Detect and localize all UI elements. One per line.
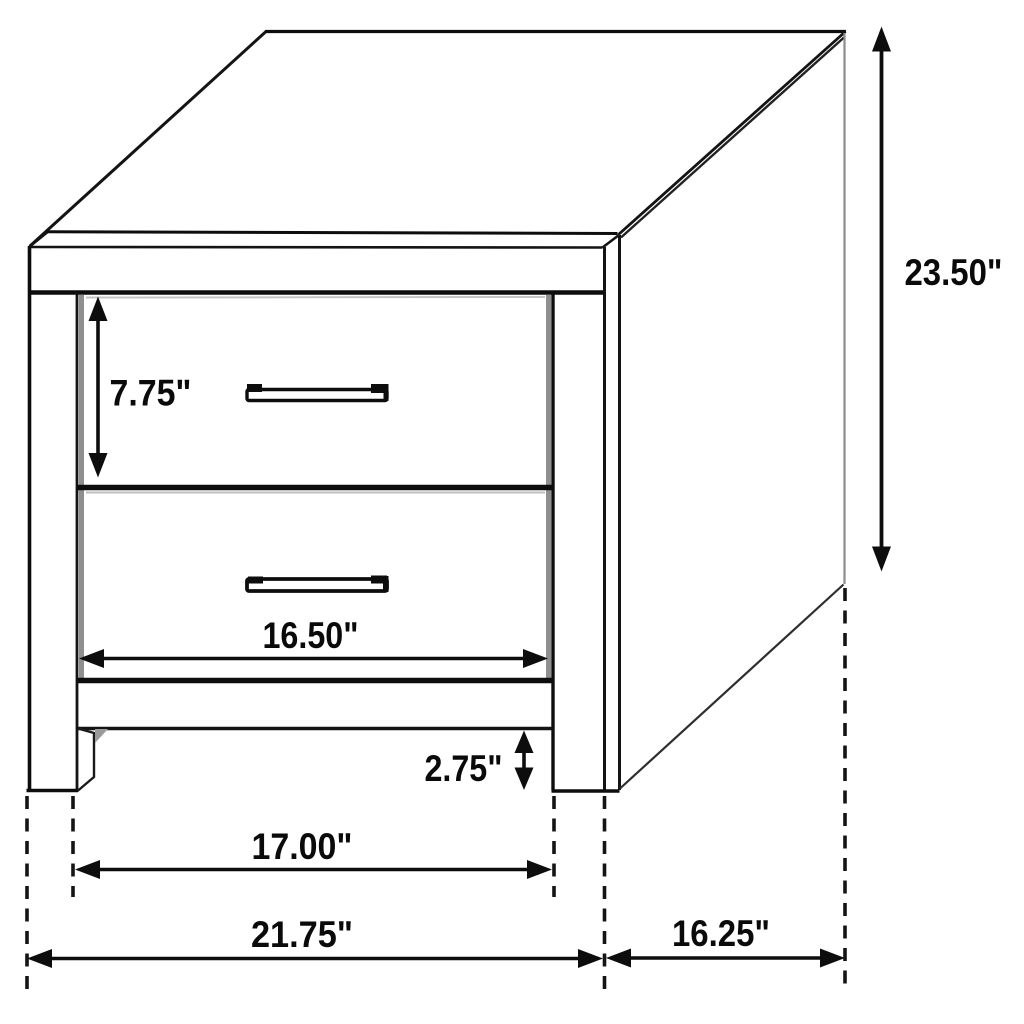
svg-text:16.25": 16.25" [672, 913, 770, 954]
svg-text:21.75": 21.75" [251, 914, 353, 955]
svg-text:23.50": 23.50" [905, 252, 1003, 293]
svg-text:7.75": 7.75" [110, 373, 192, 414]
svg-text:17.00": 17.00" [252, 826, 353, 867]
svg-text:2.75": 2.75" [425, 748, 503, 789]
svg-text:16.50": 16.50" [263, 615, 359, 656]
